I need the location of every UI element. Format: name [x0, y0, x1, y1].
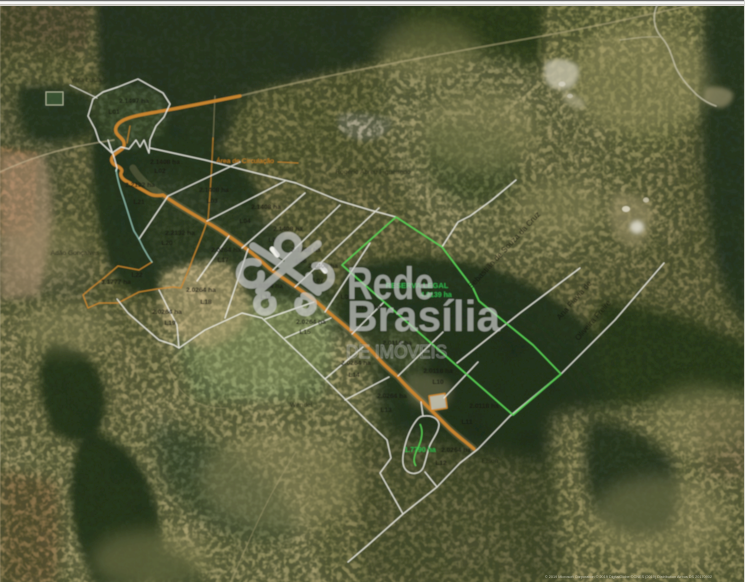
svg-text:© 2019 Microsoft Corporation ©: © 2019 Microsoft Corporation © 2019 Digi…	[545, 575, 712, 579]
